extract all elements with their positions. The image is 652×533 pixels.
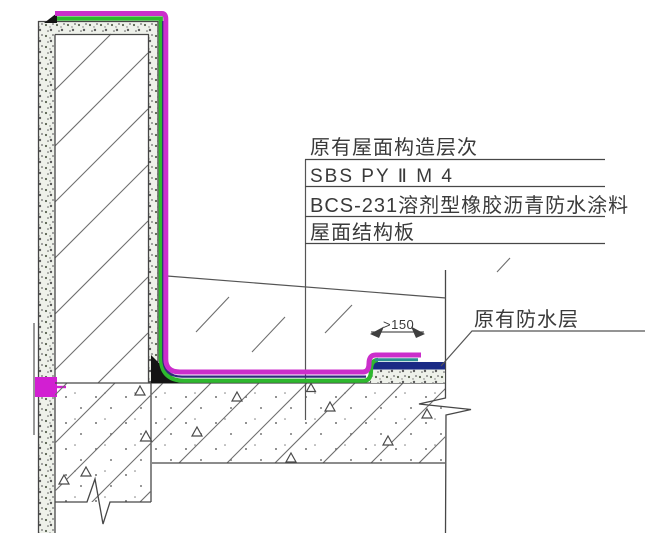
- existing-waterproof-leader: [441, 331, 645, 366]
- existing-waterproof-callout: 原有防水层: [441, 308, 645, 366]
- existing-waterproof-band: [370, 362, 445, 370]
- concrete-hatch: [0, 375, 507, 510]
- wall-right-stipple-band: [149, 21, 159, 383]
- dimension-text: >150: [383, 317, 414, 332]
- roof-structural-slab: [0, 270, 507, 533]
- callout-existing-roof-layers: 原有屋面构造层次: [310, 136, 478, 159]
- existing-waterproof-text: 原有防水层: [474, 308, 579, 331]
- screed-sparse-hatch: [196, 258, 510, 352]
- construction-detail-page: 原有屋面构造层次 SBS PY Ⅱ M 4 BCS-231溶剂型橡胶沥青防水涂料…: [0, 0, 652, 533]
- existing-screed-stipple: [370, 370, 445, 384]
- callout-sbs-membrane: SBS PY Ⅱ M 4: [310, 166, 454, 187]
- lap-dimension: >150: [370, 317, 425, 338]
- sbs-membrane-line: [55, 14, 421, 373]
- callout-bcs-coating: BCS-231溶剂型橡胶沥青防水涂料: [310, 194, 629, 217]
- wall-top-stipple-band: [38, 21, 159, 35]
- flashing-block-rect: [35, 377, 57, 397]
- wall-hatch: [55, 34, 148, 383]
- callout-structural-slab: 屋面结构板: [310, 221, 415, 244]
- wall-left-stipple-band: [38, 21, 55, 533]
- layer-callout-list: 原有屋面构造层次 SBS PY Ⅱ M 4 BCS-231溶剂型橡胶沥青防水涂料…: [305, 136, 629, 244]
- existing-screed-layer: [167, 258, 510, 352]
- existing-waterproof-layer: [370, 362, 445, 383]
- screed-slope-line: [167, 276, 446, 298]
- roof-parapet-waterproofing-detail-drawing: 原有屋面构造层次 SBS PY Ⅱ M 4 BCS-231溶剂型橡胶沥青防水涂料…: [0, 0, 652, 533]
